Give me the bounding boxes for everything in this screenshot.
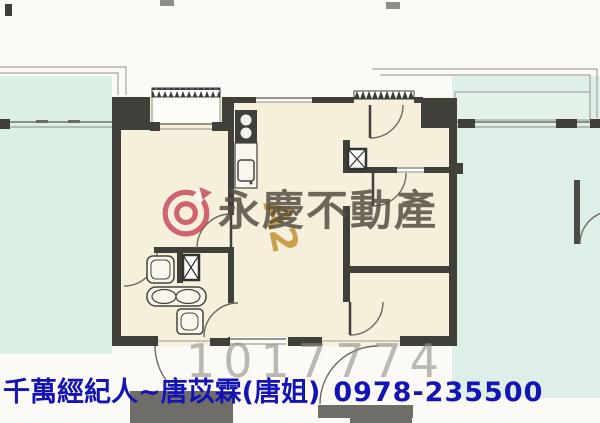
yungching-logo-icon [160, 184, 214, 238]
neighbor-area-left [0, 76, 112, 354]
brand-watermark-text: 永慶不動產 [218, 190, 438, 232]
kitchen-fixtures [235, 110, 257, 188]
window-kitchen-top [256, 97, 312, 103]
agent-contact-line: 千萬經紀人~唐苡霖(唐姐)0978-235500 [3, 377, 600, 409]
window-hatched-entry [354, 91, 414, 99]
floor-plan-page: 1017774 A2 永慶不動產 千萬經紀人~唐苡霖(唐姐)0978-23550… [0, 0, 600, 423]
window-bay-bedroom1 [152, 88, 220, 129]
neighbor-balcony-right [455, 92, 590, 120]
neighbor-area-right [452, 76, 600, 398]
brand-watermark: 永慶不動產 [160, 184, 438, 238]
window-entry-divider [397, 167, 424, 173]
neighbor-wall [574, 180, 580, 244]
agent-name-text: 千萬經紀人~唐苡霖(唐姐) [3, 377, 320, 408]
agent-phone-number: 0978-235500 [333, 377, 543, 408]
